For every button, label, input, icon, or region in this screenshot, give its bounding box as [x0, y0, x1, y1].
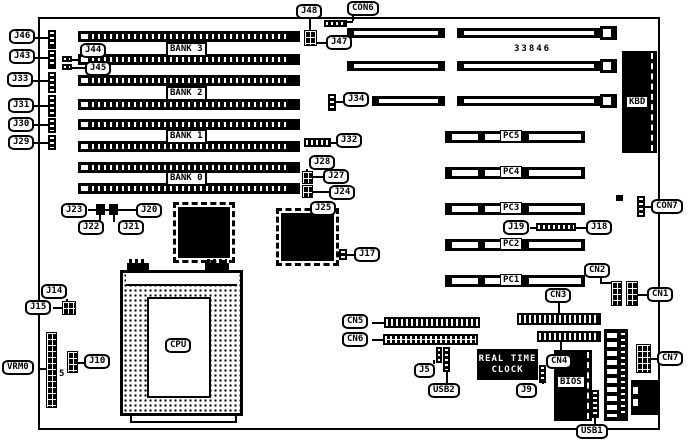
bank3-label: BANK 3: [166, 42, 207, 57]
leader-line: [317, 42, 326, 44]
connector-j48-j47: [304, 30, 317, 46]
part-number: 33846: [514, 44, 551, 54]
connector-j5: [436, 347, 442, 363]
callout-j47: J47: [326, 35, 352, 50]
leader-line: [530, 227, 536, 229]
leader-line: [560, 342, 562, 354]
callout-j31: J31: [8, 98, 34, 113]
simm-slot: [78, 31, 300, 42]
callout-j28: J28: [309, 155, 335, 170]
connector-cn2: [611, 281, 622, 306]
isa-slot-endcap: [600, 94, 617, 108]
callout-j20: J20: [136, 203, 162, 218]
connector-vrm: [46, 332, 57, 408]
connector-j44: [62, 56, 72, 62]
callout-j17: J17: [354, 247, 380, 262]
socket-top-connector: [205, 263, 229, 270]
stacked-port-connector: [631, 380, 660, 415]
pc1-label: PC1: [500, 274, 522, 286]
callout-j25: J25: [310, 201, 336, 216]
callout-usb2: USB2: [428, 383, 460, 398]
callout-j29: J29: [8, 135, 34, 150]
callout-j43: J43: [9, 49, 35, 64]
leader-line: [433, 360, 435, 364]
pc5-label: PC5: [500, 130, 522, 142]
leader-line: [638, 294, 647, 296]
connector-j19-j18: [536, 223, 576, 231]
connector-j24-j25: [302, 185, 313, 198]
cpu-label: CPU: [165, 338, 191, 353]
leader-line: [309, 19, 311, 30]
isa-slot: [457, 96, 601, 106]
callout-j23: J23: [61, 203, 87, 218]
rtc-label-line2: CLOCK: [491, 365, 523, 376]
callout-cn1: CN1: [647, 287, 673, 302]
callout-j10: J10: [84, 354, 110, 369]
leader-line: [576, 227, 586, 229]
leader-line: [600, 282, 611, 284]
callout-con7: CON7: [651, 199, 683, 214]
connector-usb2: [443, 347, 450, 372]
pc2-label: PC2: [500, 238, 522, 250]
leader-line: [33, 80, 48, 82]
isa-slot-endcap: [600, 26, 617, 40]
leader-line: [542, 381, 544, 384]
callout-cn6: CN6: [342, 332, 368, 347]
callout-cn5: CN5: [342, 314, 368, 329]
isa-slot: [372, 96, 445, 106]
callout-j18: J18: [586, 220, 612, 235]
connector-j33: [48, 72, 56, 93]
socket-top-band: [126, 274, 237, 286]
pc4-label: PC4: [500, 166, 522, 178]
leader-line: [558, 303, 560, 313]
callout-j44: J44: [80, 43, 106, 58]
callout-j27: J27: [323, 169, 349, 184]
leader-line: [446, 372, 448, 383]
connector-j17: [339, 249, 347, 260]
callout-j14: J14: [41, 284, 67, 299]
leader-line: [34, 142, 48, 144]
leader-line: [306, 169, 308, 172]
connector-cn3: [517, 313, 601, 325]
kbd-label: KBD: [626, 96, 648, 108]
callout-j22: J22: [78, 220, 104, 235]
connector-j30: [48, 118, 56, 133]
leader-line: [53, 307, 62, 309]
isa-slot-endcap: [600, 59, 617, 73]
leader-line: [34, 124, 48, 126]
leader-line: [113, 215, 115, 222]
bank0-label: BANK 0: [166, 171, 207, 186]
connector-j43: [48, 50, 56, 69]
callout-j9: J9: [516, 383, 537, 398]
leader-line: [34, 105, 48, 107]
leader-line: [66, 299, 68, 302]
qfp-chip: [178, 207, 230, 258]
callout-j21: J21: [118, 220, 144, 235]
connector-cn5: [384, 317, 480, 328]
connector-j14-j15: [62, 301, 76, 315]
connector-j46: [48, 30, 56, 49]
edge-connector-column: [604, 329, 628, 421]
callout-j5: J5: [414, 363, 435, 378]
leader-line: [346, 21, 353, 23]
callout-j48: J48: [296, 4, 322, 19]
connector-j32: [304, 138, 331, 147]
leader-line: [347, 254, 354, 256]
leader-line: [313, 176, 323, 178]
motherboard-diagram: J46 J43 J33 J31 J30 J29 BANK 3 BANK 2 BA…: [0, 0, 692, 445]
bank2-label: BANK 2: [166, 86, 207, 101]
leader-line: [72, 67, 85, 69]
pc3-label: PC3: [500, 202, 522, 214]
connector-j28-j27: [302, 171, 313, 184]
callout-j15: J15: [25, 300, 51, 315]
callout-cn3: CN3: [545, 288, 571, 303]
callout-vrm: VRM0: [2, 360, 34, 375]
connector-cn4: [537, 331, 601, 342]
callout-j19: J19: [503, 220, 529, 235]
connector-j29: [48, 135, 56, 150]
callout-cn7: CN7: [657, 351, 683, 366]
connector-cn1: [626, 281, 638, 306]
rtc-chip: REAL TIME CLOCK: [477, 349, 538, 380]
leader-line: [35, 57, 48, 59]
connector-j34: [328, 94, 336, 111]
rtc-label-line1: REAL TIME: [479, 354, 537, 365]
isa-slot: [347, 28, 445, 38]
connector-usb1: [591, 390, 599, 418]
callout-usb1: USB1: [576, 424, 608, 439]
callout-j24: J24: [329, 185, 355, 200]
isa-slot: [457, 61, 601, 71]
component-dot: [616, 195, 623, 201]
socket-foot: [130, 414, 237, 423]
leader-line: [88, 209, 138, 211]
callout-cn4: CN4: [546, 354, 572, 369]
bank1-label: BANK 1: [166, 129, 207, 144]
leader-line: [72, 59, 80, 61]
leader-line: [372, 339, 383, 341]
connector-cn6: [383, 334, 478, 345]
callout-j46: J46: [9, 29, 35, 44]
callout-j45: J45: [85, 61, 111, 76]
leader-line: [38, 368, 46, 370]
socket-top-connector: [127, 263, 149, 270]
callout-cn2: CN2: [584, 263, 610, 278]
connector-con7: [637, 196, 645, 217]
simm-slot: [78, 75, 300, 86]
leader-line: [313, 191, 329, 193]
leader-line: [35, 37, 48, 39]
callout-j34: J34: [343, 92, 369, 107]
callout-j33: J33: [7, 72, 33, 87]
isa-slot: [347, 61, 445, 71]
qfp-chip: [281, 213, 334, 261]
leader-line: [372, 322, 384, 324]
connector-j10: [67, 351, 78, 373]
callout-j32: J32: [336, 133, 362, 148]
connector-j31: [48, 95, 56, 117]
callout-j30: J30: [8, 117, 34, 132]
bios-label: BIOS: [557, 376, 585, 388]
connector-j45: [62, 64, 72, 70]
connector-con6: [324, 20, 347, 27]
isa-slot: [457, 28, 601, 38]
callout-con6: CON6: [347, 1, 379, 16]
connector-cn7: [636, 344, 651, 373]
vrm-pin-number: 5: [59, 369, 64, 379]
